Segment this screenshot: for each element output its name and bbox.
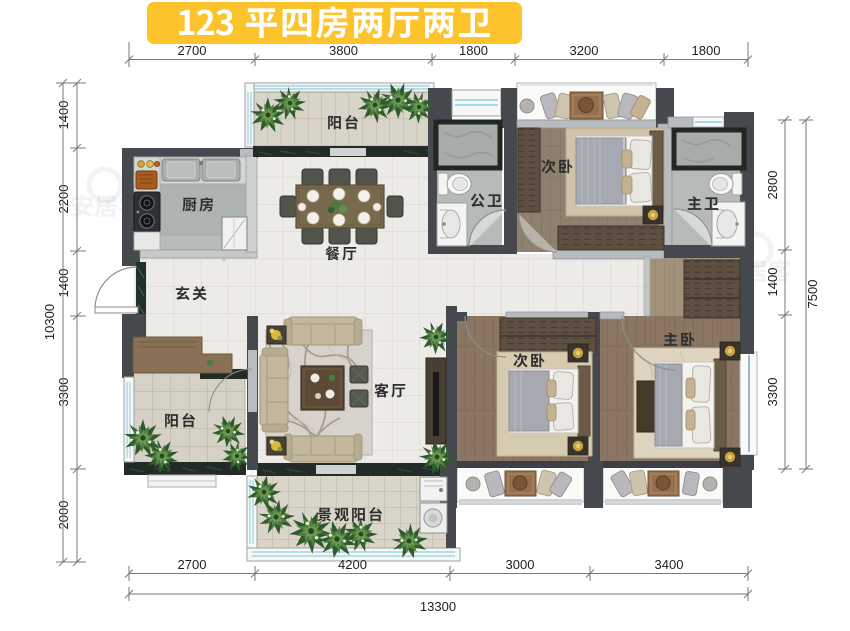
svg-text:4200: 4200 (338, 557, 367, 572)
svg-text:2700: 2700 (178, 43, 207, 58)
svg-text:10300: 10300 (42, 304, 57, 340)
svg-text:3800: 3800 (329, 43, 358, 58)
svg-text:3200: 3200 (570, 43, 599, 58)
svg-text:3400: 3400 (655, 557, 684, 572)
svg-text:1800: 1800 (692, 43, 721, 58)
svg-text:1800: 1800 (459, 43, 488, 58)
svg-text:1400: 1400 (765, 268, 780, 297)
svg-text:7500: 7500 (805, 280, 820, 309)
svg-text:13300: 13300 (420, 599, 456, 614)
svg-text:2700: 2700 (178, 557, 207, 572)
svg-text:3300: 3300 (765, 378, 780, 407)
svg-text:3000: 3000 (506, 557, 535, 572)
svg-text:2800: 2800 (765, 171, 780, 200)
